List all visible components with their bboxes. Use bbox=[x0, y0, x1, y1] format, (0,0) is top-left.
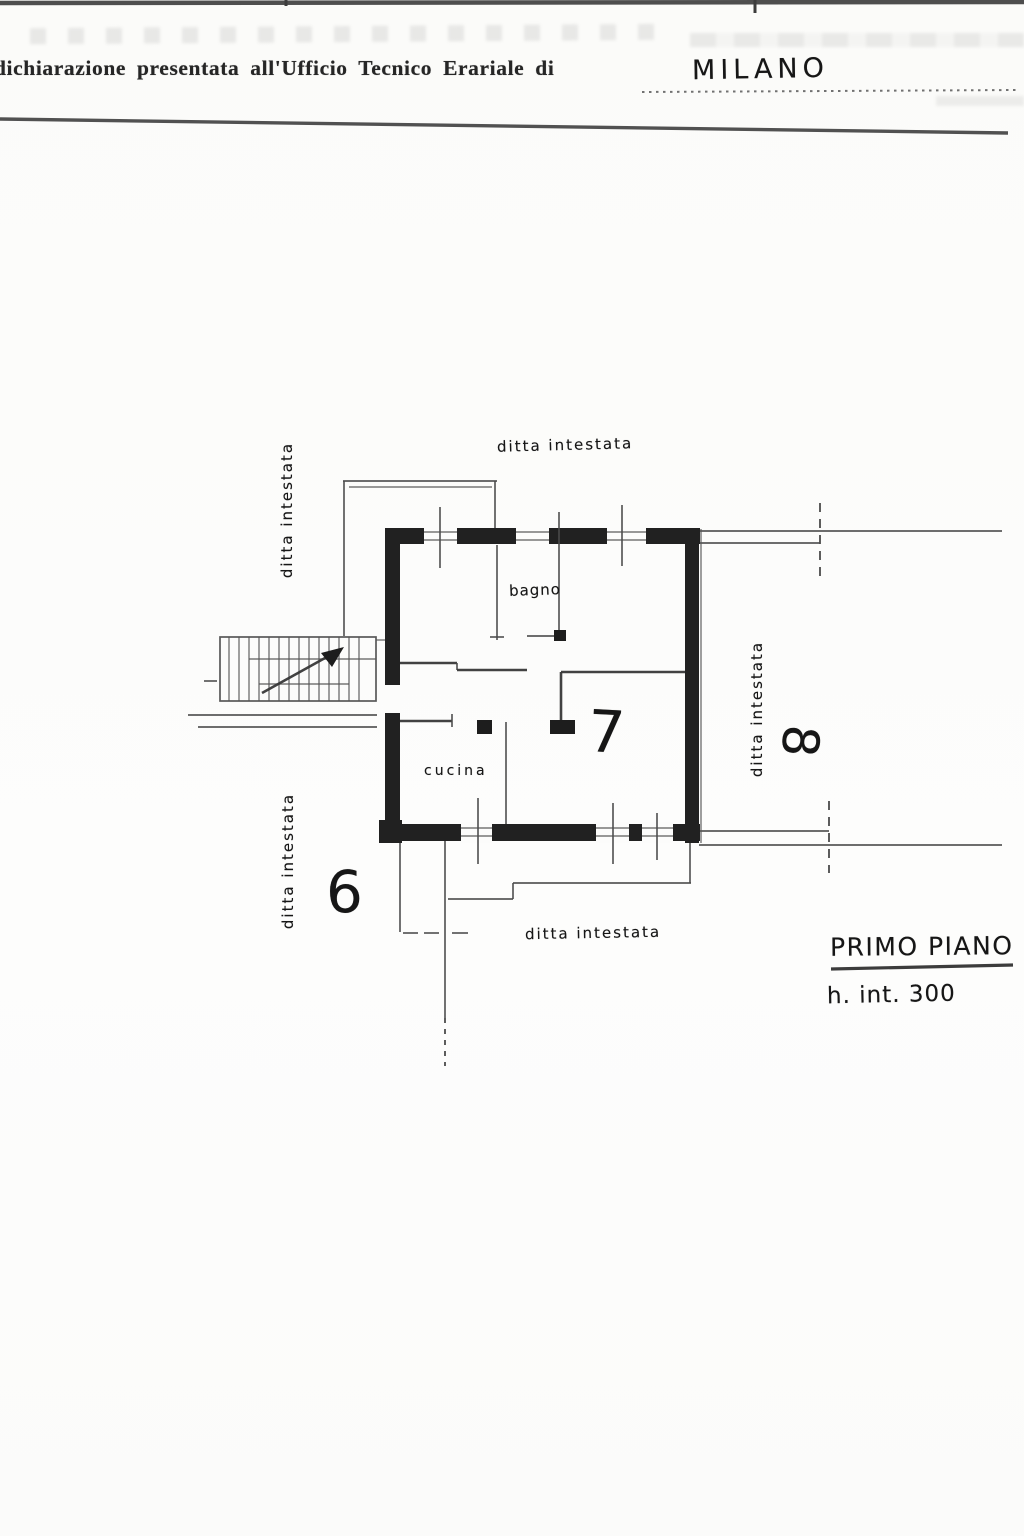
scanned-cadastral-sheet: dichiarazione presentata all'Ufficio Tec… bbox=[0, 0, 1024, 1536]
owner-label-left-upper: ditta intestata bbox=[278, 442, 296, 578]
floor-plan-drawing bbox=[0, 0, 1024, 1536]
room-label-bathroom: bagno bbox=[509, 580, 562, 600]
form-declaration-label: dichiarazione presentata all'Ufficio Tec… bbox=[0, 56, 554, 81]
room-label-kitchen: cucina bbox=[424, 763, 488, 779]
interior-height-note: h. int. 300 bbox=[827, 981, 956, 1010]
unit-number-8: 8 bbox=[770, 723, 831, 760]
owner-label-bottom: ditta intestata bbox=[525, 923, 661, 943]
city-handwritten-value: MILANO bbox=[692, 53, 829, 86]
floor-title: PRIMO PIANO bbox=[830, 931, 1014, 962]
unit-number-7: 7 bbox=[586, 697, 626, 767]
owner-label-top: ditta intestata bbox=[497, 434, 634, 456]
unit-number-6: 6 bbox=[326, 858, 363, 926]
owner-label-right: ditta intestata bbox=[748, 641, 766, 777]
owner-label-left-lower: ditta intestata bbox=[279, 793, 297, 929]
